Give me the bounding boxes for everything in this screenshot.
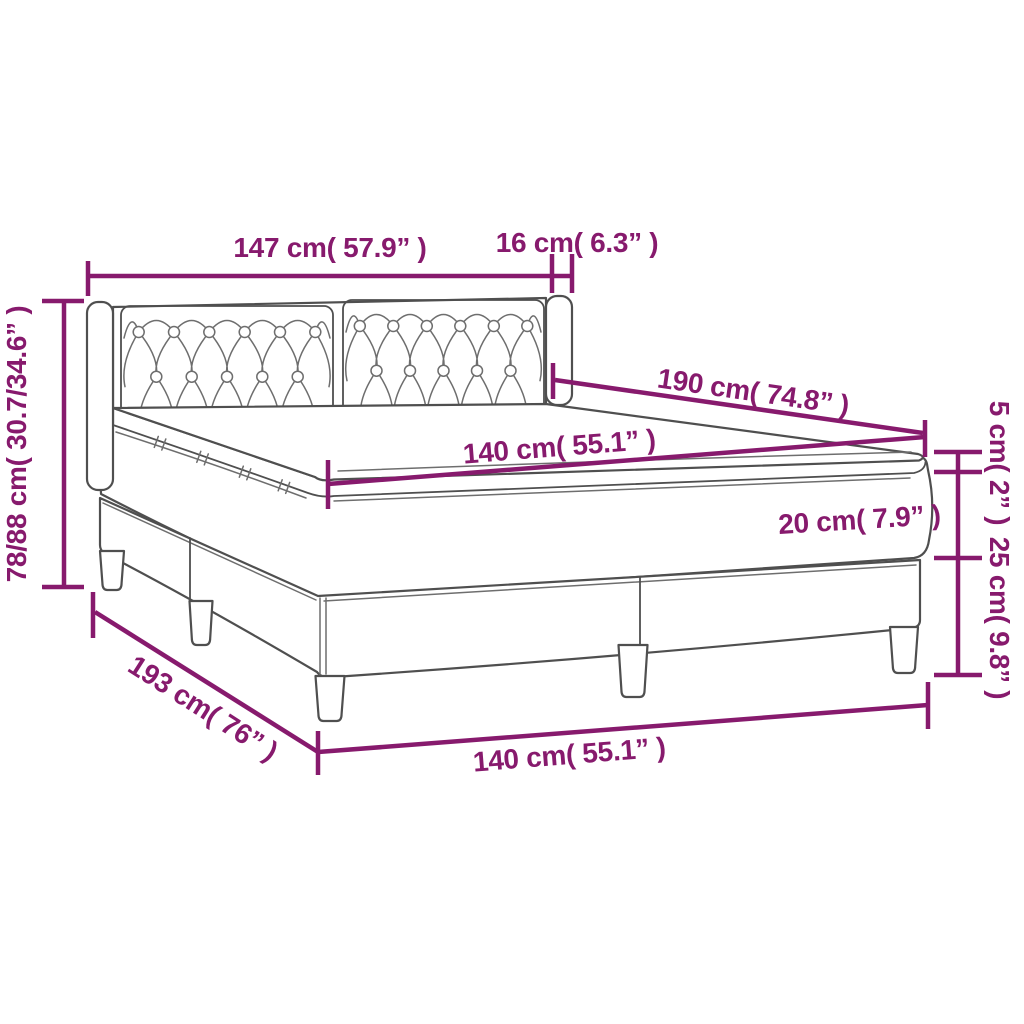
bed-leg [100,551,124,590]
wing-depth-label: 16 cm( 6.3” ) [496,227,659,258]
bed-dimension-diagram: 147 cm( 57.9” ) 16 cm( 6.3” ) 78/88 cm( … [0,0,1024,1024]
tuft-button [151,371,162,382]
tuft-button [522,321,533,332]
tuft-button [505,365,516,376]
dim-total-height: 78/88 cm( 30.7/34.6” ) [1,301,84,587]
base-height-label: 25 cm( 9.8” ) [984,537,1015,700]
tuft-button [222,371,233,382]
tuft-button [186,371,197,382]
tuft-button [169,327,180,338]
headboard-width-label: 147 cm( 57.9” ) [233,232,426,263]
tuft-button [371,365,382,376]
topper-thickness-label: 5 cm( 2” ) [984,401,1015,526]
bed-leg [316,676,345,721]
frame-length-label: 193 cm( 76” ) [123,649,283,767]
total-height-label: 78/88 cm( 30.7/34.6” ) [1,306,32,583]
tuft-button [488,321,499,332]
tuft-button [204,327,215,338]
tuft-button [292,371,303,382]
tuft-button [310,327,321,338]
bed-leg [890,627,918,673]
tuft-button [421,321,432,332]
tuft-button [388,321,399,332]
tuft-button [275,327,286,338]
headboard-left-wing [87,302,113,490]
tuft-button [239,327,250,338]
headboard-right-wing [546,296,572,405]
dim-right-axis: 5 cm( 2” ) 25 cm( 9.8” ) [934,401,1015,700]
tuft-button [438,365,449,376]
mattress-length-label: 190 cm( 74.8” ) [656,362,852,420]
tuft-button [354,321,365,332]
bed-leg [190,601,213,645]
tuft-button [257,371,268,382]
tuft-button [133,327,144,338]
tuft-button [472,365,483,376]
bed-leg [619,645,648,697]
tuft-button [405,365,416,376]
dim-wing-depth: 16 cm( 6.3” ) [496,227,659,293]
tuft-button [455,321,466,332]
